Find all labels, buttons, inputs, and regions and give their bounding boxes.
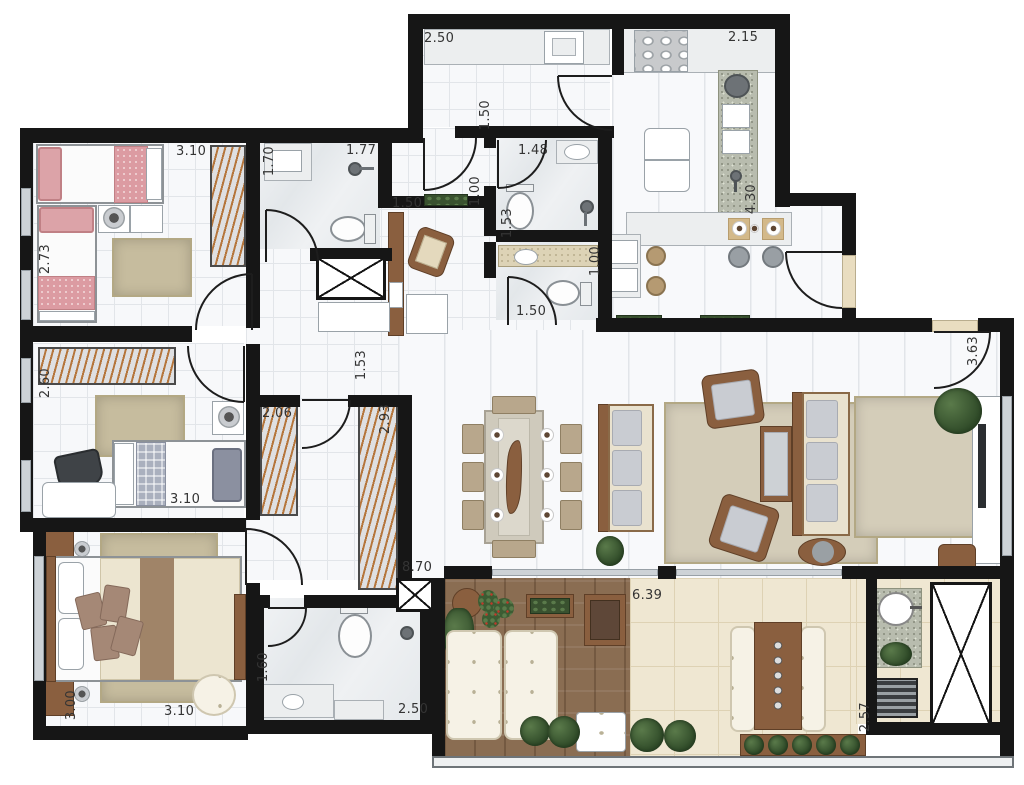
lounge-cushion xyxy=(590,600,620,640)
wall xyxy=(856,318,932,332)
wall xyxy=(775,14,790,207)
sofa-cushion xyxy=(612,410,642,446)
table-lamp xyxy=(218,406,240,428)
dim-tv-room-depth: 3.63 xyxy=(966,336,981,366)
toilet-tank xyxy=(364,214,376,244)
planter-plant xyxy=(768,735,788,755)
wall xyxy=(842,193,856,255)
shaft xyxy=(930,582,992,726)
sofa-cushion xyxy=(612,490,642,526)
desk xyxy=(42,482,116,518)
toilet-tank xyxy=(506,184,534,192)
papers xyxy=(389,282,403,308)
bed-blanket xyxy=(136,442,166,506)
shower-head-icon xyxy=(580,200,594,214)
shower-head-icon xyxy=(400,626,414,640)
entrance-sill xyxy=(932,320,978,332)
dim-office-niche: 1.00 xyxy=(468,176,483,206)
wardrobe xyxy=(210,145,246,267)
console-table xyxy=(318,302,390,332)
potted-plant xyxy=(482,610,500,628)
dining-chair xyxy=(560,424,582,454)
tv xyxy=(978,424,986,508)
sink xyxy=(564,144,590,160)
planter-box xyxy=(424,194,468,206)
pouf xyxy=(192,674,236,716)
dim-kitchen-width: 2.15 xyxy=(728,30,758,45)
wall xyxy=(246,128,260,328)
dim-master-bath-width: 1.60 xyxy=(256,652,271,682)
dim-bedroom1-depth: 2.73 xyxy=(38,244,53,274)
oven xyxy=(610,240,638,264)
dim-closet-left: 2.06 xyxy=(262,406,292,421)
bench-seat xyxy=(800,626,826,732)
printer-table xyxy=(406,294,448,334)
toilet xyxy=(330,216,366,242)
dining-chair xyxy=(560,500,582,530)
shower-arm xyxy=(584,212,587,226)
bush xyxy=(630,718,664,752)
bowl xyxy=(750,224,759,233)
daybed xyxy=(446,630,502,740)
dim-bath1-depth: 1.70 xyxy=(262,146,277,176)
planter-plant xyxy=(792,735,812,755)
dining-chair xyxy=(462,500,484,530)
plate xyxy=(732,221,747,236)
wall xyxy=(876,566,1014,579)
wall xyxy=(484,138,496,148)
wardrobe xyxy=(38,347,176,385)
bar-stool xyxy=(762,246,784,268)
potted-plant xyxy=(880,642,912,666)
planter-plant xyxy=(816,735,836,755)
bed-bolster xyxy=(39,207,94,233)
round-sink xyxy=(724,74,750,98)
lavabo-counter xyxy=(498,245,598,267)
dim-living-length: 8.70 xyxy=(402,560,432,575)
wall xyxy=(484,186,496,236)
dim-master-width: 3.10 xyxy=(164,704,194,719)
dim-bath1-width: 1.77 xyxy=(346,143,376,158)
sink xyxy=(514,249,538,265)
balcony-railing xyxy=(432,756,1014,768)
microwave xyxy=(610,268,638,292)
grill-sink-handle xyxy=(910,606,922,609)
wall xyxy=(20,326,192,342)
stool xyxy=(646,246,666,266)
wall xyxy=(246,720,436,734)
bush xyxy=(548,716,580,748)
floor-plant xyxy=(934,388,982,434)
shaft xyxy=(316,256,386,300)
sofa-cushion xyxy=(806,484,838,522)
wall xyxy=(246,595,270,608)
bush xyxy=(520,716,550,746)
cooktop xyxy=(634,30,688,72)
plate xyxy=(540,468,554,482)
bush xyxy=(664,720,696,752)
window xyxy=(21,358,31,403)
bed-pillow xyxy=(39,311,95,321)
tv-panel xyxy=(234,594,246,680)
apartment-floor-plan: 2.50 2.15 1.50 1.48 1.00 1.70 1.77 1.50 … xyxy=(0,0,1024,785)
shaft xyxy=(396,578,434,612)
laundry-sink-basin xyxy=(552,38,576,56)
dining-chair xyxy=(492,540,536,558)
sink-bowl xyxy=(722,104,750,128)
sink-bowl xyxy=(722,130,750,154)
wall xyxy=(484,242,496,278)
dim-bedroom2-depth: 2.60 xyxy=(38,368,53,398)
dim-balcony-depth: 2.57 xyxy=(858,702,873,732)
bed-pillow xyxy=(114,443,134,505)
shelf xyxy=(130,205,163,233)
dim-bath1-lower: 1.50 xyxy=(392,196,422,211)
wall xyxy=(20,518,246,532)
planter-plant xyxy=(840,735,860,755)
toilet xyxy=(546,280,580,306)
bed-pillow xyxy=(58,618,84,670)
wall xyxy=(598,138,612,320)
dim-lavabo-depth: 1.00 xyxy=(588,246,603,276)
bed-foot-cushion xyxy=(212,448,242,502)
faucet-arm xyxy=(734,180,737,192)
table-lamp xyxy=(74,541,90,557)
dim-master-depth: 3.00 xyxy=(64,690,79,720)
wall xyxy=(658,566,676,579)
dim-service-depth: 1.50 xyxy=(478,100,493,130)
plate xyxy=(540,508,554,522)
plate xyxy=(490,508,504,522)
bar-stool xyxy=(728,246,750,268)
bed-blanket xyxy=(38,276,95,310)
wall xyxy=(20,128,422,143)
wall xyxy=(484,126,614,138)
bed-bolster xyxy=(38,147,62,201)
dim-hall-width: 1.53 xyxy=(354,350,369,380)
wall xyxy=(398,395,412,578)
plate xyxy=(540,428,554,442)
dim-bedroom2-width: 3.10 xyxy=(170,492,200,507)
armchair-cushion xyxy=(711,379,756,420)
wall xyxy=(842,566,876,579)
sliding-door xyxy=(492,569,658,576)
window xyxy=(21,188,31,236)
ottoman-table xyxy=(576,712,626,752)
window xyxy=(34,556,44,681)
planter-plant xyxy=(744,735,764,755)
vanity-counter xyxy=(334,700,384,720)
sofa-cushion xyxy=(612,450,642,486)
bed-runner xyxy=(140,558,174,680)
wall xyxy=(33,726,248,740)
floor-plant xyxy=(596,536,624,566)
side-table-top xyxy=(812,541,834,563)
sliding-door xyxy=(676,569,842,576)
rug xyxy=(112,238,192,297)
toilet xyxy=(338,614,372,658)
plate xyxy=(766,221,781,236)
window xyxy=(21,460,31,512)
refrigerator xyxy=(644,160,690,192)
dim-closet-right: 2.93 xyxy=(378,404,393,434)
dim-bath-social-depth: 1.53 xyxy=(500,208,515,238)
wall xyxy=(596,318,856,332)
dim-bath-social-width: 1.48 xyxy=(518,143,548,158)
dim-bedroom1-width: 3.10 xyxy=(176,144,206,159)
shower-arm xyxy=(360,167,374,170)
desk xyxy=(388,212,404,336)
dining-chair xyxy=(462,462,484,492)
stool xyxy=(646,276,666,296)
toilet-tank xyxy=(580,282,592,306)
dim-kitchen-depth: 4.30 xyxy=(744,184,759,214)
dining-chair xyxy=(560,462,582,492)
wall xyxy=(408,14,790,29)
wall xyxy=(444,566,492,579)
plate xyxy=(490,468,504,482)
grill-sink xyxy=(878,592,914,626)
table-setting xyxy=(770,638,788,712)
coffee-table-top xyxy=(764,432,788,496)
dining-chair xyxy=(492,396,536,414)
refrigerator xyxy=(644,128,690,160)
window xyxy=(1002,396,1012,556)
door-sill xyxy=(842,255,856,308)
sofa-cushion xyxy=(806,400,838,438)
dim-lavabo-width: 1.50 xyxy=(516,304,546,319)
dim-master-bath-length: 2.50 xyxy=(398,702,428,717)
bed-headboard xyxy=(46,556,56,682)
dim-balcony-length: 6.39 xyxy=(632,588,662,603)
bed-pillow xyxy=(146,148,162,200)
barbecue-grate xyxy=(872,678,918,718)
dim-service-width: 2.50 xyxy=(424,31,454,46)
wall xyxy=(408,14,423,143)
planter-greens xyxy=(530,598,570,614)
sofa-cushion xyxy=(806,442,838,480)
plate xyxy=(490,428,504,442)
dining-chair xyxy=(462,424,484,454)
bench-seat xyxy=(730,626,756,732)
table-lamp xyxy=(103,207,125,229)
window xyxy=(21,270,31,320)
sink xyxy=(282,694,304,710)
bed-blanket xyxy=(114,146,148,203)
wall xyxy=(246,344,260,520)
wall xyxy=(612,29,624,75)
